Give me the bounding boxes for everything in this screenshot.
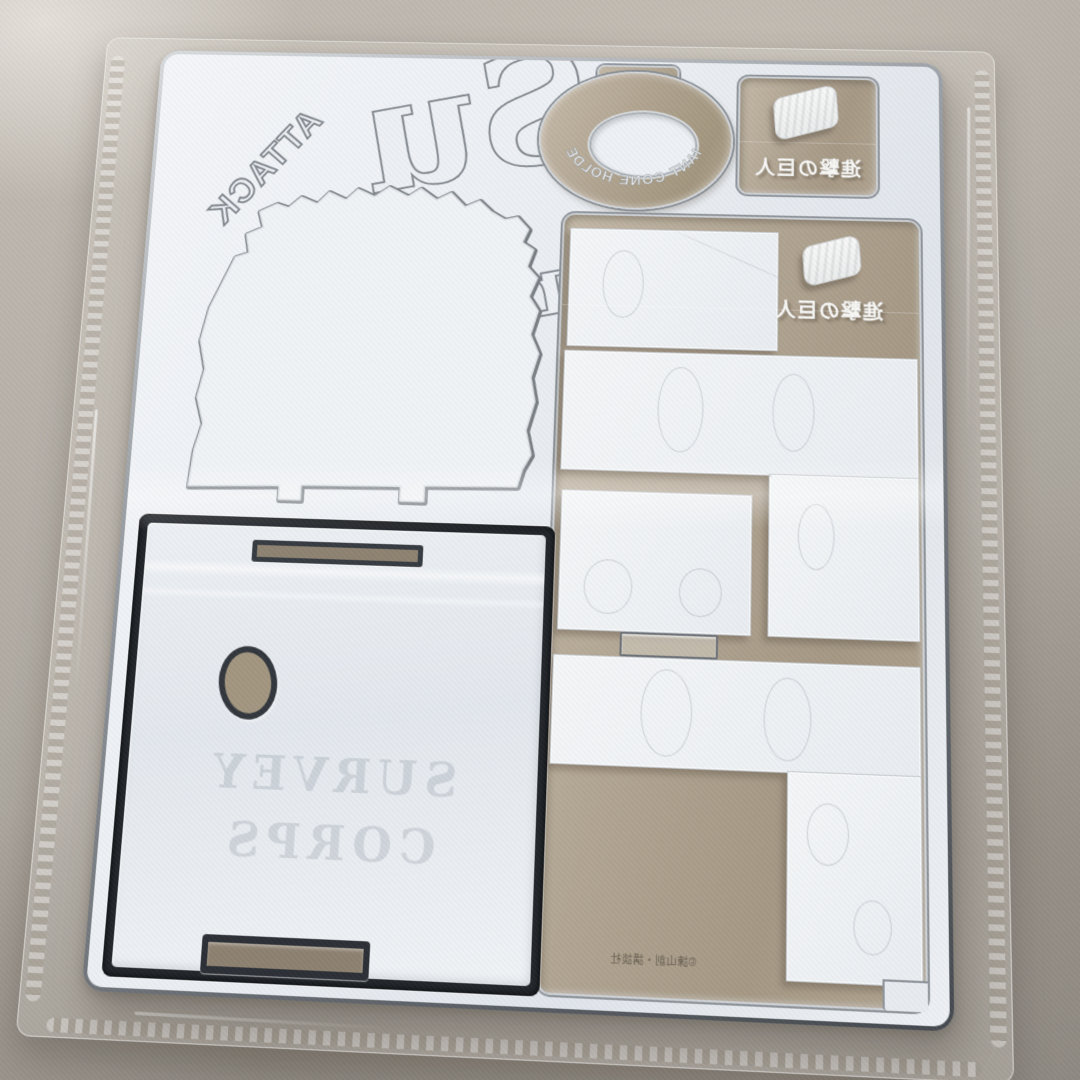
base-plate-slot-top [251,540,423,567]
svg-text:GIANT CONE HOLDER: GIANT CONE HOLDER [560,126,706,191]
acrylic-sheet: ATTACK Su r GIANT CONE HOLDER [86,54,950,1027]
manga-panel-piece [566,228,778,352]
cone-holder-label-arc: GIANT CONE HOLDER [536,70,730,208]
cone-holder-label: GIANT CONE HOLDER [560,126,706,191]
clear-window-main: 進撃の巨人 ©諫山創・講談社 [538,215,925,1011]
backing-seam [740,141,876,145]
base-plate-hole [215,642,281,723]
base-plate-piece: SURVEY CORPS [111,523,546,987]
window-step-notch [882,979,928,1012]
jp-title-piece: 進撃の巨人 [749,152,866,182]
base-plate-slot-bottom [200,934,371,981]
wings-crest-piece [773,83,839,141]
manga-panel-piece [557,489,753,636]
base-plate-print-corps: CORPS [120,809,536,881]
manga-panel-piece [549,654,921,779]
base-plate-print-survey: SURVEY [126,742,539,812]
acrylic-sheet-edge: ATTACK Su r GIANT CONE HOLDER [82,50,955,1031]
character-silhouette-piece [164,170,564,545]
clear-window-top: 進撃の巨人 [739,78,876,195]
stand-slot-piece [619,632,718,660]
wings-crest-piece [802,233,862,288]
bag-gloss-highlight [966,107,970,434]
base-plate-recess: SURVEY CORPS [101,513,555,996]
copyright-text: ©諫山創・講談社 [558,947,696,970]
product-photo: ATTACK Su r GIANT CONE HOLDER [0,0,1080,1080]
manga-panel-piece [560,350,919,481]
manga-panel-piece [786,771,924,988]
manga-panel-piece [767,474,920,642]
packaged-kit: ATTACK Su r GIANT CONE HOLDER [82,50,955,1031]
bag-crimp-right [974,71,1006,1049]
